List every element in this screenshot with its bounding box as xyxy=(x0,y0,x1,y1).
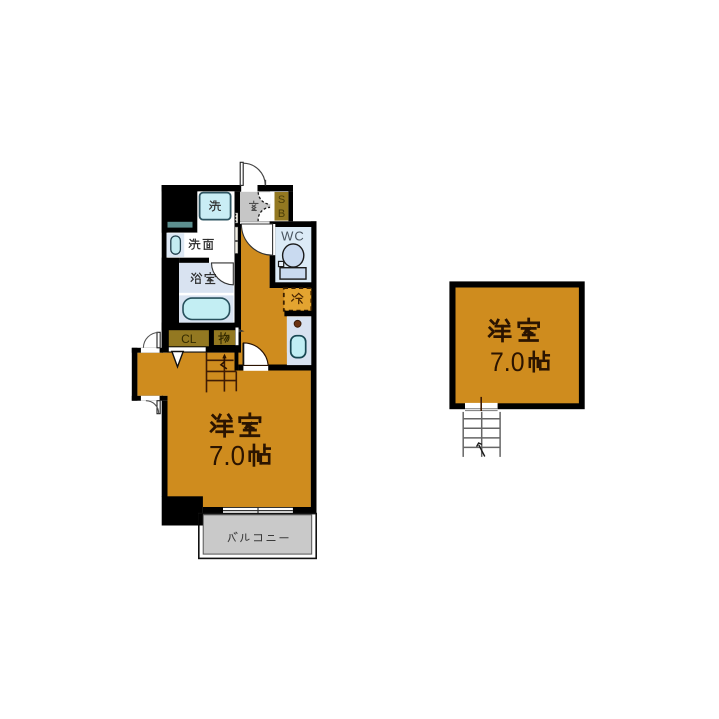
svg-text:7.0: 7.0 xyxy=(490,347,525,377)
svg-text:S: S xyxy=(278,194,285,206)
svg-text:CL: CL xyxy=(181,332,197,346)
svg-text:7.0: 7.0 xyxy=(209,440,245,471)
svg-text:WC: WC xyxy=(281,229,305,244)
svg-text:B: B xyxy=(278,208,285,220)
